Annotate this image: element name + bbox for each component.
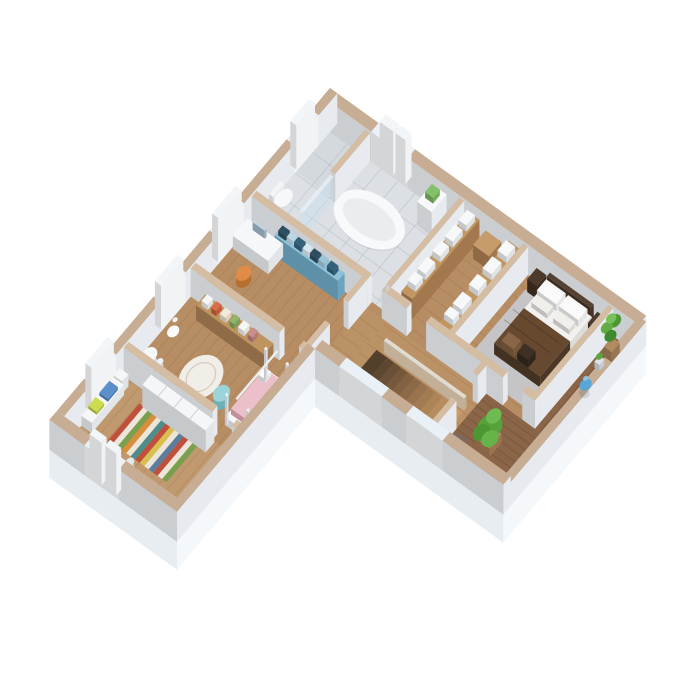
floorplan-3d-render: 3D isometric floor plan render — L-shape… xyxy=(0,0,700,700)
floorplan-svg xyxy=(0,0,700,700)
window-frame-tab-north-2 xyxy=(396,126,412,184)
window-frame-tab-south-2 xyxy=(105,440,121,496)
canopy-post-3 xyxy=(225,393,229,427)
window-frame-tab-south-1 xyxy=(90,429,107,486)
